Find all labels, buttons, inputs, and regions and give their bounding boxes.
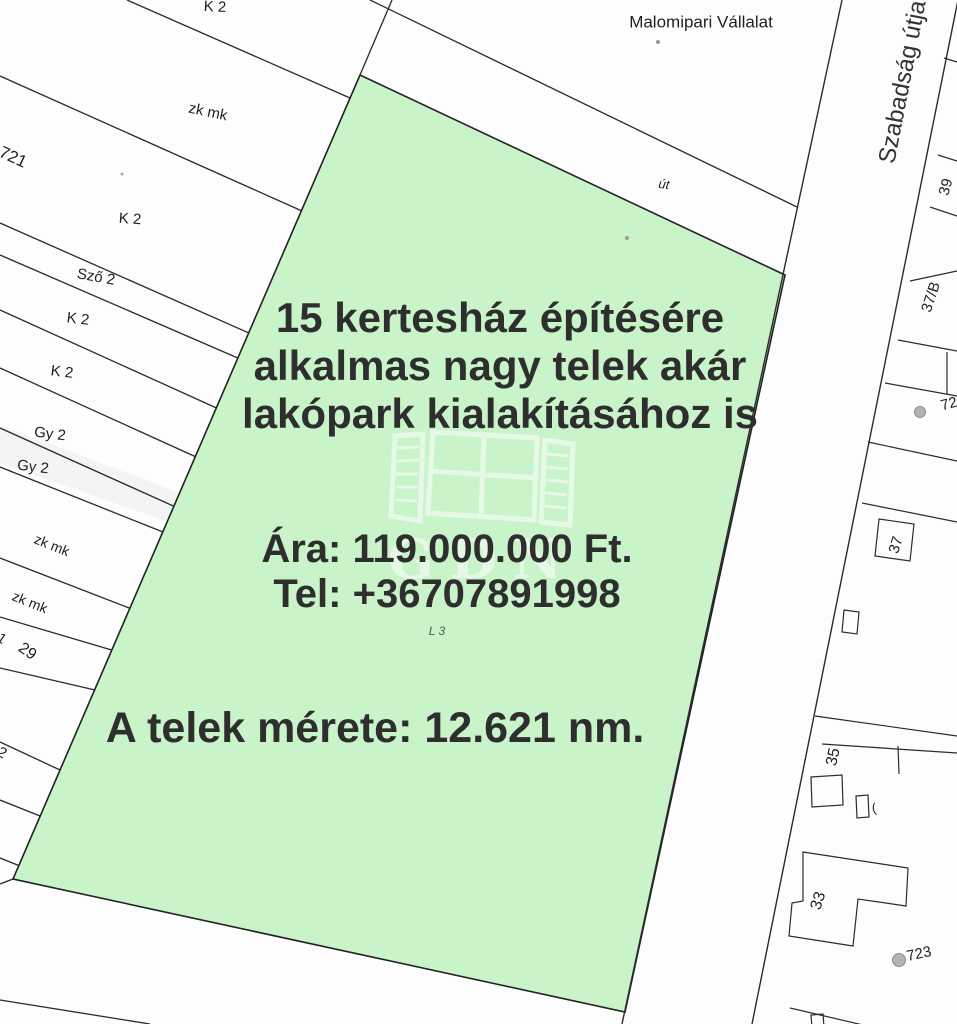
- headline-line-2: alkalmas nagy telek akár: [228, 342, 772, 390]
- cadastral-map: GDN 15 kertesház építésére alkalmas nagy…: [0, 0, 957, 1024]
- map-label-k2-c: K 2: [66, 310, 90, 328]
- listing-headline: 15 kertesház építésére alkalmas nagy tel…: [228, 294, 772, 438]
- headline-line-3: lakópark kialakításához is: [228, 390, 772, 438]
- map-label-gy2-a: Gy 2: [33, 425, 66, 444]
- phone-line: Tel: +36707891998: [167, 572, 727, 617]
- price-line: Ára: 119.000.000 Ft.: [167, 527, 727, 572]
- map-label-k2-d: K 2: [50, 363, 74, 381]
- map-label-ut: út: [658, 177, 671, 191]
- right-parcel-lines: [790, 58, 957, 1024]
- map-label-l3: L 3: [429, 625, 445, 637]
- map-label-k2-top: K 2: [203, 0, 226, 15]
- listing-contact: Ára: 119.000.000 Ft. Tel: +36707891998: [167, 527, 727, 617]
- map-label-gy2-b: Gy 2: [16, 458, 49, 477]
- map-label-parcel-72: 72: [939, 395, 957, 414]
- headline-line-1: 15 kertesház építésére: [228, 294, 772, 342]
- map-label-k2-b: K 2: [118, 211, 142, 228]
- plot-size-line: A telek mérete: 12.621 nm.: [95, 704, 655, 753]
- watermark-window-icon: [385, 428, 581, 528]
- map-label-malomipari-vallalat: Malomipari Vállalat: [629, 14, 773, 31]
- building-outlines: [789, 519, 914, 1024]
- map-label-parcel-39: 39: [937, 177, 956, 197]
